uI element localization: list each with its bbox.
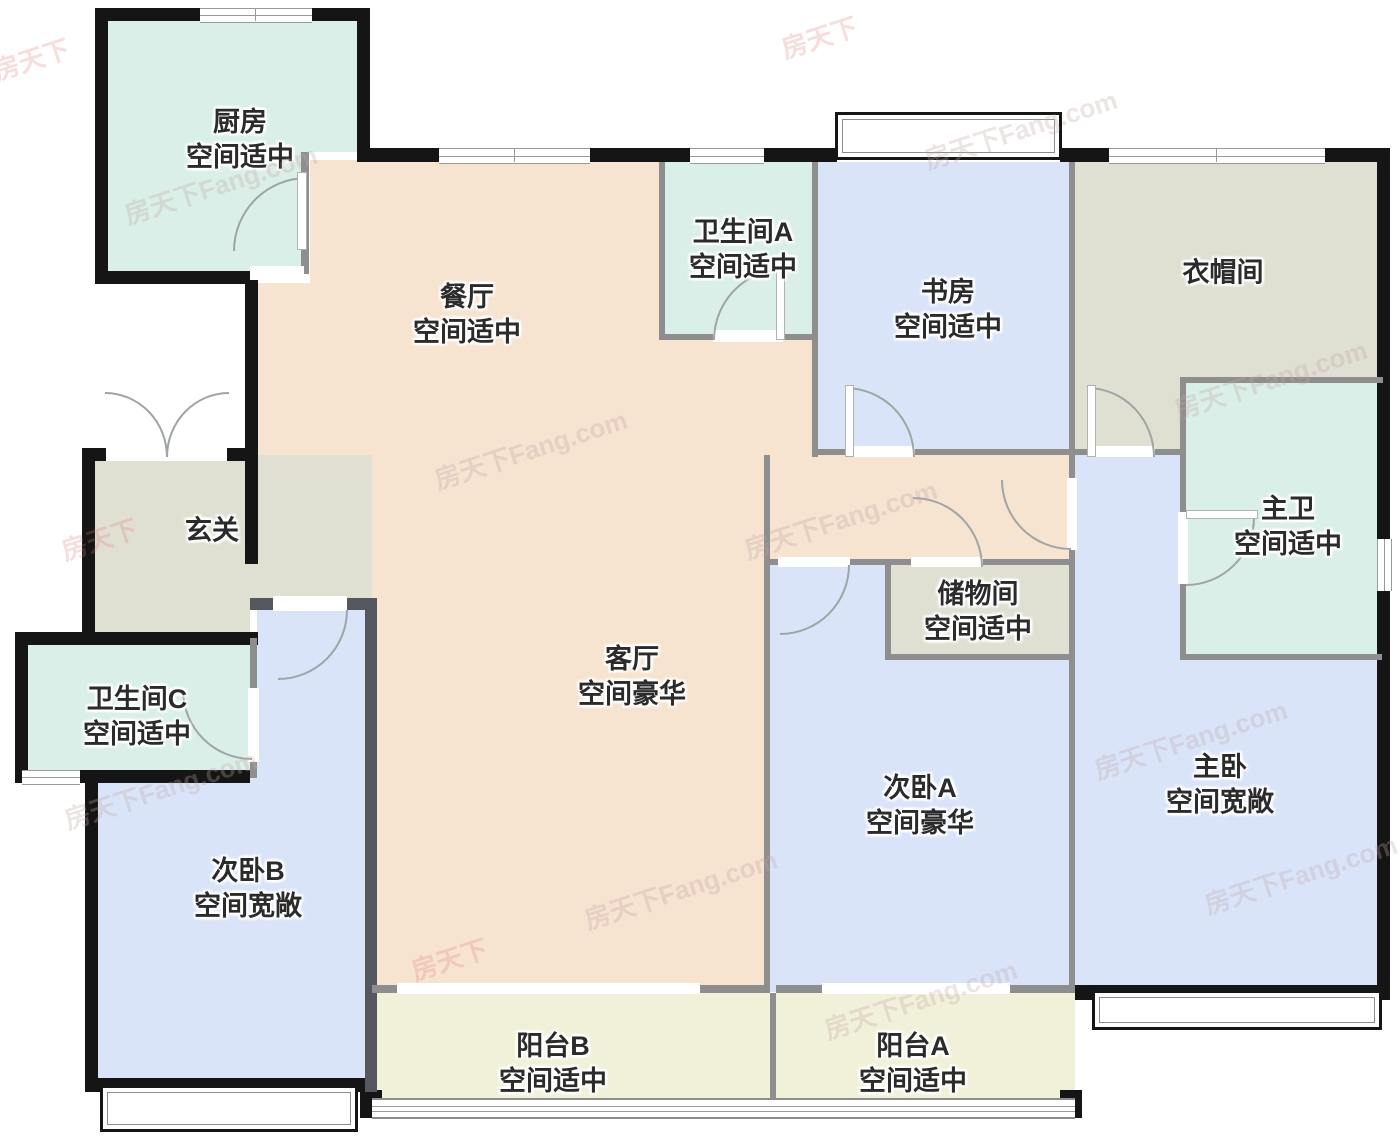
room-grade: 空间适中 xyxy=(1234,527,1342,562)
window xyxy=(1377,539,1392,591)
room-label-balcony-b: 阳台B 空间适中 xyxy=(499,1029,607,1099)
watermark: 房天下 xyxy=(0,29,74,88)
window-divider xyxy=(1216,148,1217,162)
room-name: 储物间 xyxy=(924,577,1032,612)
balcony-opening xyxy=(822,983,1010,994)
wall-segment xyxy=(85,775,98,1092)
door-arc-entry-right xyxy=(166,392,229,457)
room-label-entry: 玄关 xyxy=(185,513,239,548)
window-divider xyxy=(255,8,256,21)
room-label-bath-c: 卫生间C 空间适中 xyxy=(83,682,191,752)
dining-floor xyxy=(665,338,815,457)
dining-floor xyxy=(310,160,665,285)
watermark: 房天下 xyxy=(776,7,862,66)
room-grade: 空间宽敞 xyxy=(1166,785,1274,820)
room-name: 衣帽间 xyxy=(1183,255,1264,290)
wall-segment xyxy=(357,8,370,152)
room-name: 卫生间A xyxy=(689,215,797,250)
room-label-storage: 储物间 空间适中 xyxy=(924,577,1032,647)
wall-segment xyxy=(15,770,22,783)
wall-segment xyxy=(357,148,439,162)
window xyxy=(22,770,80,785)
window xyxy=(200,8,312,23)
doorway xyxy=(273,596,347,611)
room-label-living: 客厅 空间豪华 xyxy=(578,642,686,712)
room-name: 客厅 xyxy=(578,642,686,677)
wall-segment xyxy=(1069,162,1075,455)
door-leaf xyxy=(845,385,854,457)
room-grade: 空间适中 xyxy=(859,1064,967,1099)
window xyxy=(690,148,764,164)
bedroom-b-floor xyxy=(98,778,367,1080)
bay-window xyxy=(1092,990,1382,1030)
wall-segment xyxy=(1180,654,1382,660)
wall-segment xyxy=(95,8,108,284)
room-name: 玄关 xyxy=(185,513,239,548)
master-bedroom-floor xyxy=(1075,658,1382,992)
room-grade: 空间豪华 xyxy=(866,806,974,841)
wall-segment xyxy=(15,632,258,645)
room-label-bedroom-a: 次卧A 空间豪华 xyxy=(866,771,974,841)
room-name: 餐厅 xyxy=(413,280,521,315)
window-divider xyxy=(514,148,515,162)
room-grade: 空间适中 xyxy=(689,250,797,285)
wall-segment xyxy=(770,993,776,1115)
room-grade: 空间适中 xyxy=(83,717,191,752)
room-label-kitchen: 厨房 空间适中 xyxy=(186,105,294,175)
room-grade: 空间宽敞 xyxy=(194,889,302,924)
wall-segment xyxy=(659,162,665,340)
room-label-cloakroom: 衣帽间 xyxy=(1183,255,1264,290)
room-label-bedroom-b: 次卧B 空间宽敞 xyxy=(194,854,302,924)
wall-segment xyxy=(95,271,250,284)
wall-segment xyxy=(80,770,250,783)
room-name: 阳台A xyxy=(859,1029,967,1064)
wall-segment xyxy=(764,148,837,162)
wall-segment xyxy=(245,271,258,564)
wall-segment xyxy=(227,448,258,461)
door-arc-entry-left xyxy=(105,392,168,457)
room-label-study: 书房 空间适中 xyxy=(894,275,1002,345)
room-grade: 空间适中 xyxy=(924,612,1032,647)
room-grade: 空间适中 xyxy=(499,1064,607,1099)
room-label-balcony-a: 阳台A 空间适中 xyxy=(859,1029,967,1099)
bay-window xyxy=(100,1085,358,1132)
wall-segment xyxy=(365,598,377,1092)
wall-segment xyxy=(885,654,1075,660)
room-label-bath-a: 卫生间A 空间适中 xyxy=(689,215,797,285)
wall-segment xyxy=(764,455,770,992)
doorway xyxy=(250,266,304,280)
wall-segment xyxy=(82,448,95,638)
room-grade: 空间适中 xyxy=(894,310,1002,345)
room-label-master-bath: 主卫 空间适中 xyxy=(1234,492,1342,562)
wall-segment xyxy=(812,162,818,457)
bay-window xyxy=(835,112,1062,160)
room-label-master-bedroom: 主卧 空间宽敞 xyxy=(1166,750,1274,820)
room-name: 次卧A xyxy=(866,771,974,806)
wall-segment xyxy=(590,148,690,162)
wall-segment xyxy=(1377,148,1390,539)
room-label-dining: 餐厅 空间适中 xyxy=(413,280,521,350)
door-leaf xyxy=(1087,385,1096,457)
wall-segment xyxy=(1180,377,1383,383)
room-name: 卫生间C xyxy=(83,682,191,717)
balcony-window-band xyxy=(372,1098,1075,1119)
entry-floor xyxy=(245,455,372,602)
wall-segment xyxy=(1377,591,1390,992)
balcony-opening xyxy=(397,983,700,994)
living-floor xyxy=(372,455,768,992)
room-name: 书房 xyxy=(894,275,1002,310)
wall-segment xyxy=(15,632,28,783)
floor-plan: 厨房 空间适中 餐厅 空间适中 卫生间A 空间适中 书房 空间适中 衣帽间 玄关… xyxy=(0,0,1400,1143)
wall-segment xyxy=(885,559,891,660)
window xyxy=(1109,148,1325,164)
room-name: 主卫 xyxy=(1234,492,1342,527)
wall-segment xyxy=(1060,148,1109,162)
room-grade: 空间豪华 xyxy=(578,677,686,712)
room-grade: 空间适中 xyxy=(186,140,294,175)
room-name: 厨房 xyxy=(186,105,294,140)
room-name: 次卧B xyxy=(194,854,302,889)
room-grade: 空间适中 xyxy=(413,315,521,350)
door-leaf xyxy=(297,172,307,250)
room-name: 主卧 xyxy=(1166,750,1274,785)
room-name: 阳台B xyxy=(499,1029,607,1064)
